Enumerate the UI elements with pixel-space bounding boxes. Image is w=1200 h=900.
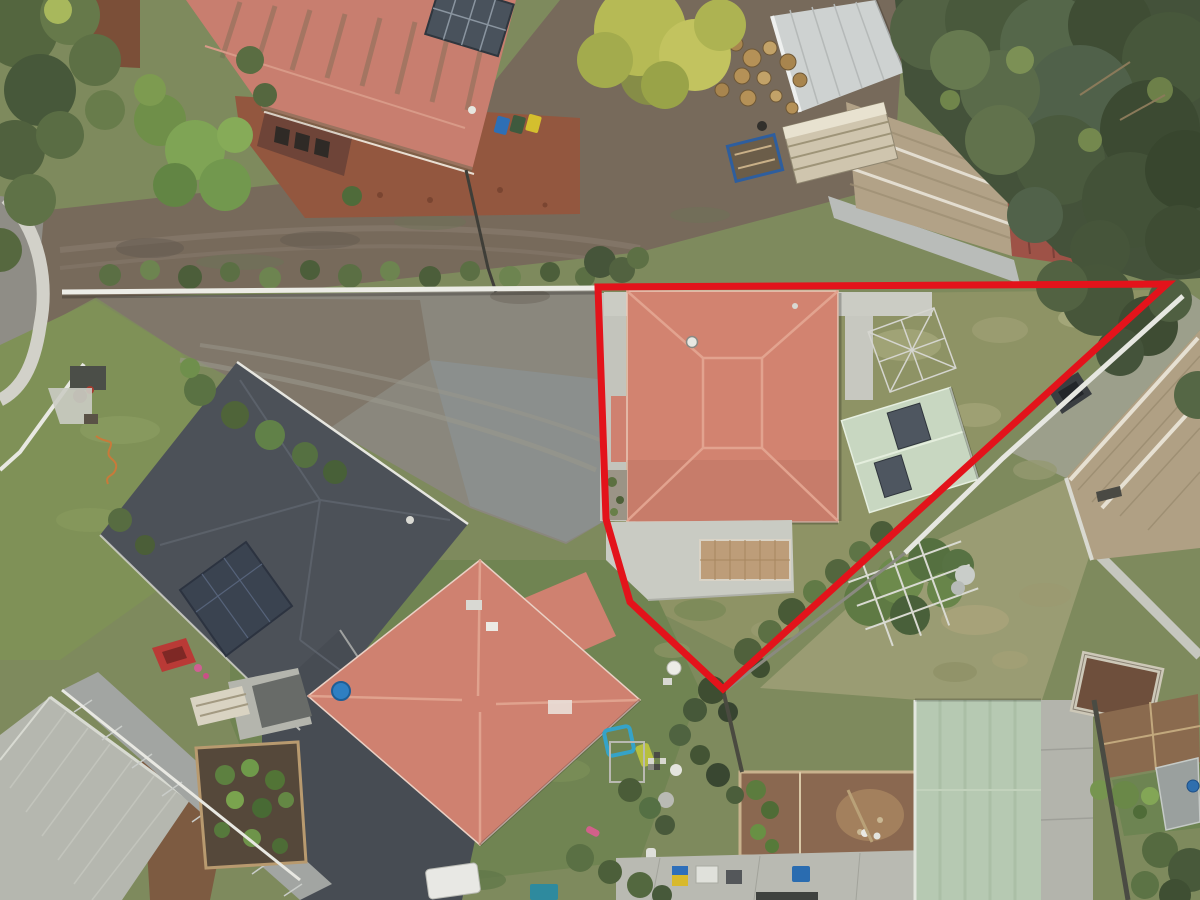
roof-vent [486,622,498,631]
aerial-photo [0,0,1200,900]
yard-figure [757,121,767,131]
paddling-pool [332,682,350,700]
ac-unit [466,600,482,610]
vegetable-garden [196,742,306,868]
subject-house [611,291,840,547]
palm-plant [342,186,362,206]
roof-vent [687,337,698,348]
outdoor-table [667,661,681,675]
pale-green-building [915,700,1093,900]
pergola [70,366,106,390]
chicken-pen [740,772,925,856]
meter-box [468,106,476,114]
outdoor-chair [663,678,672,685]
white-hen [874,833,881,840]
blue-barrel [1187,780,1199,792]
